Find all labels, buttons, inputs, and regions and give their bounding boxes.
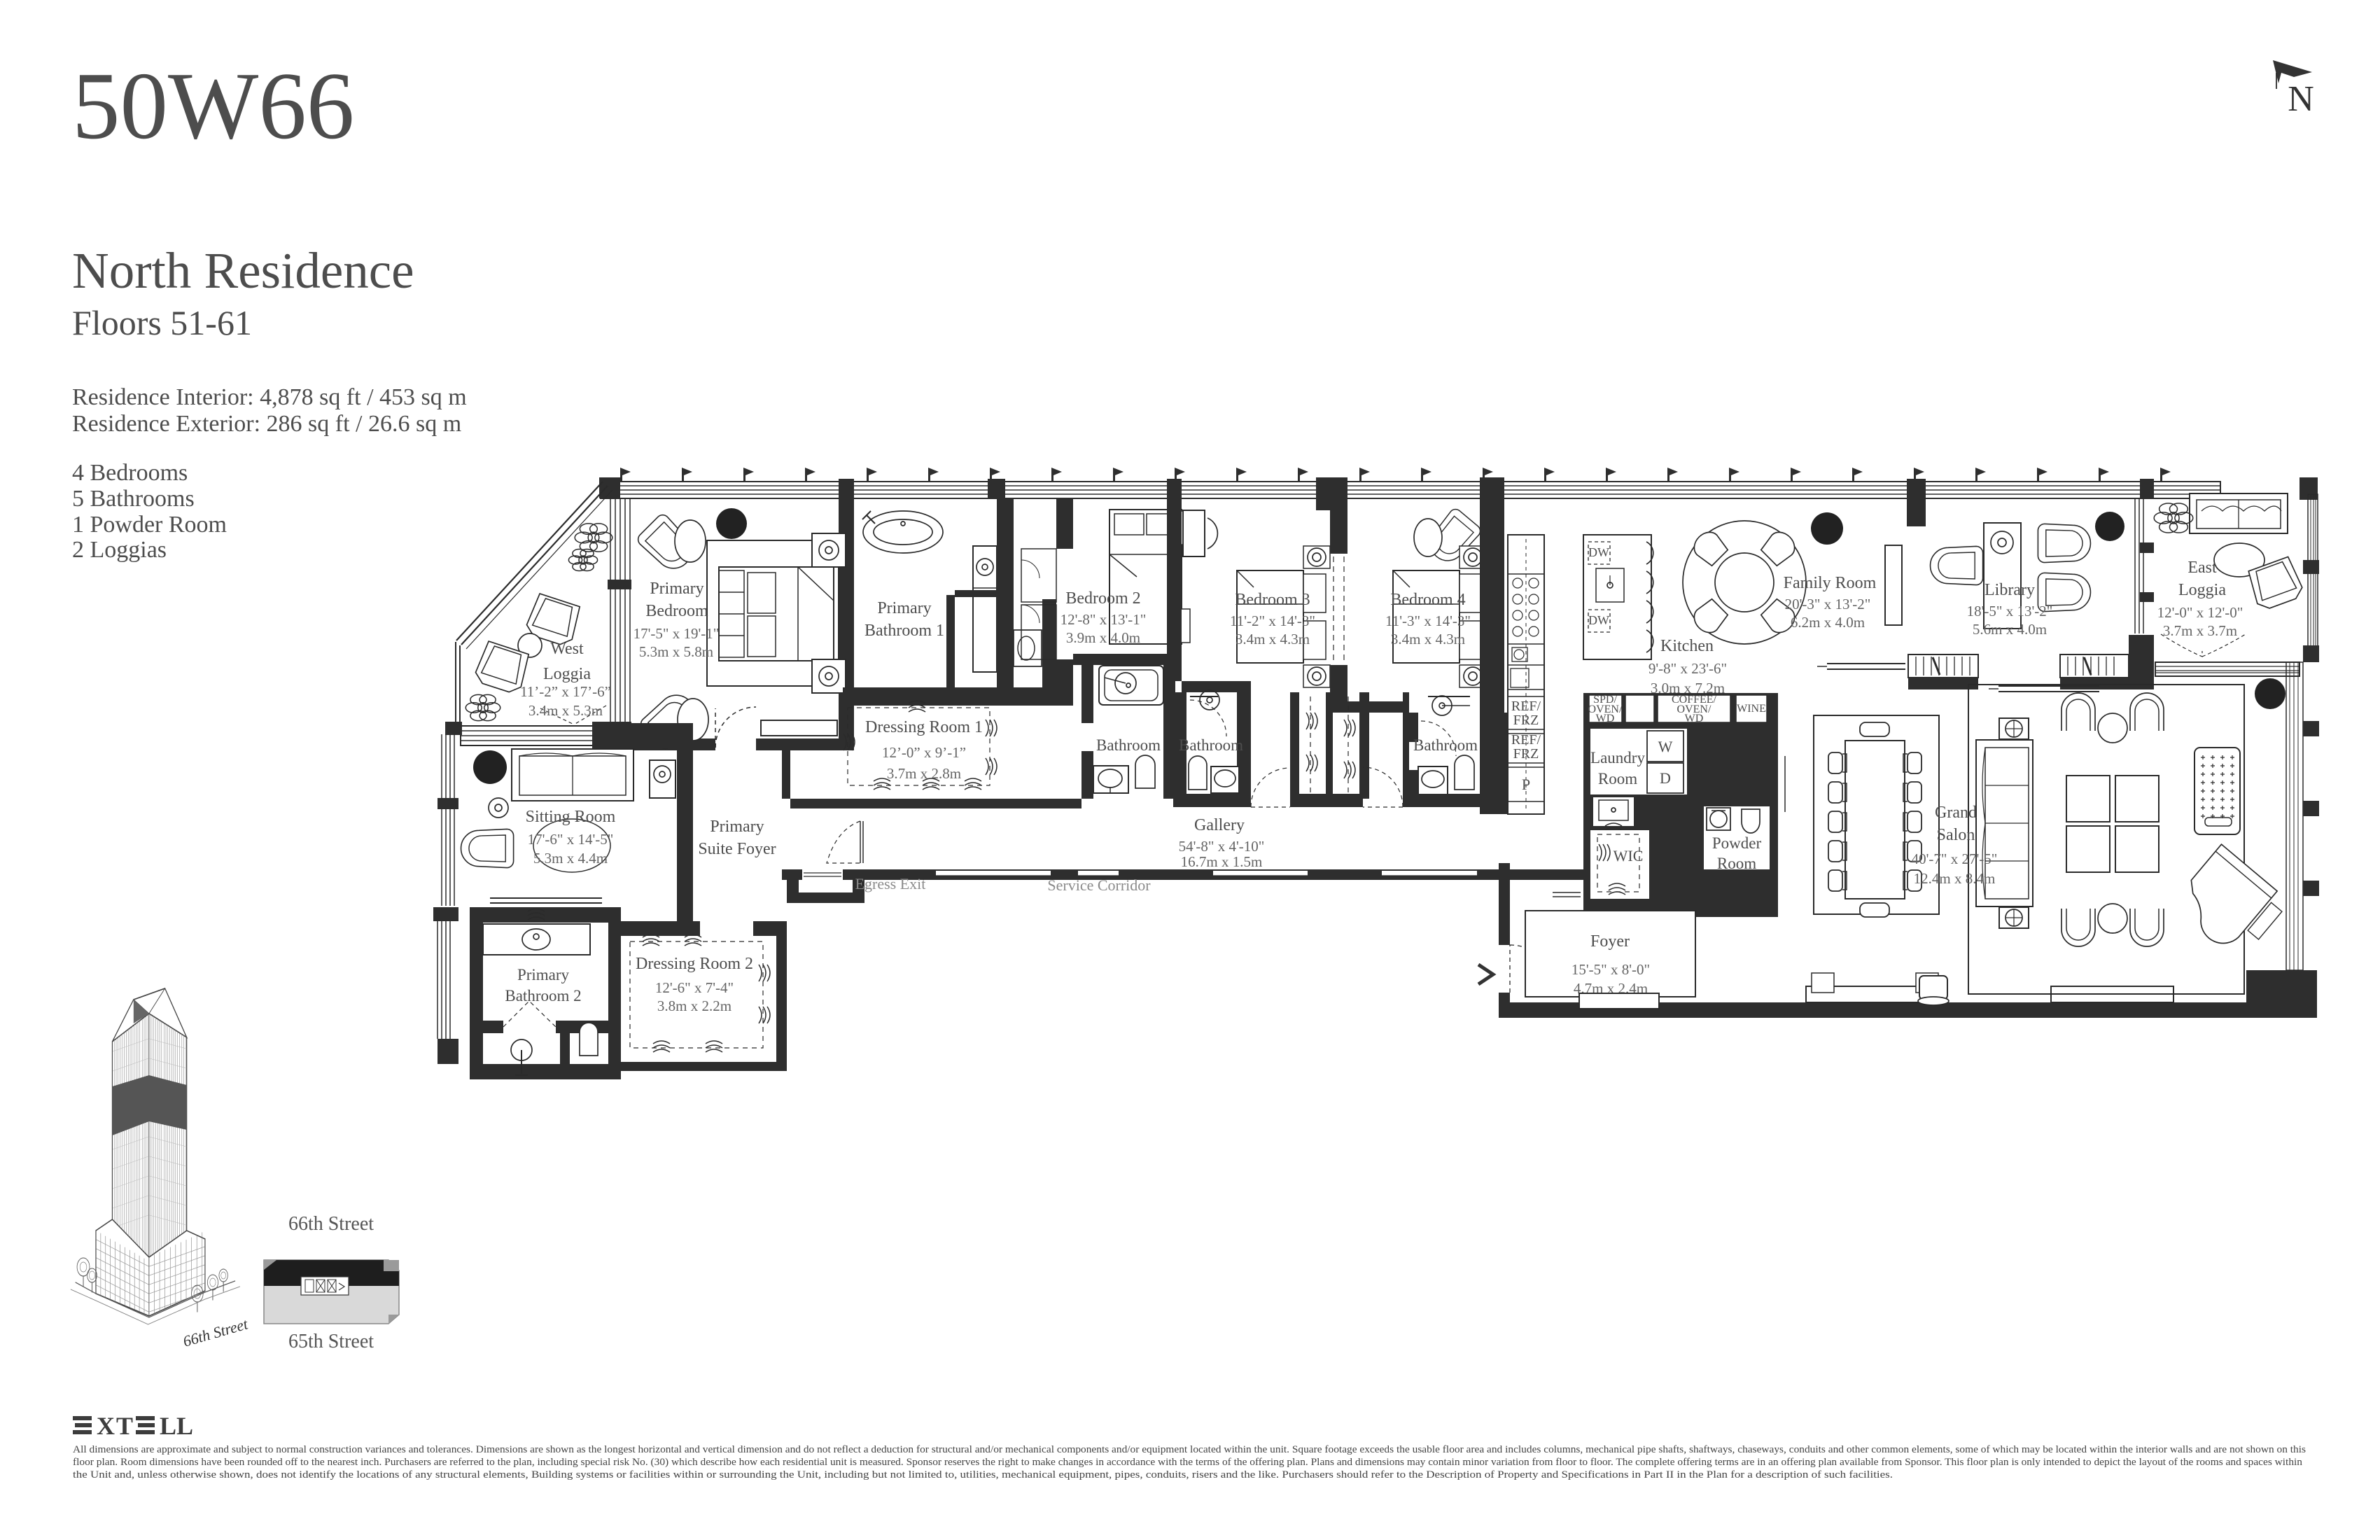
svg-text:Room: Room xyxy=(1598,770,1637,787)
svg-text:P: P xyxy=(1522,776,1530,793)
svg-text:WINE: WINE xyxy=(1737,703,1766,715)
svg-text:3.4m x 5.3m: 3.4m x 5.3m xyxy=(528,702,603,719)
svg-text:the Unit and, unless otherwis: the Unit and, unless otherwise shown, do… xyxy=(73,1469,1893,1480)
svg-text:Bedroom 4: Bedroom 4 xyxy=(1390,591,1465,609)
svg-text:Laundry: Laundry xyxy=(1590,749,1645,766)
svg-text:Egress Exit: Egress Exit xyxy=(855,875,926,892)
svg-text:17'-6" x 14'-5": 17'-6" x 14'-5" xyxy=(528,831,614,848)
svg-text:12’-0” x 9’-1”: 12’-0” x 9’-1” xyxy=(882,744,966,761)
svg-text:12'-0" x 12'-0": 12'-0" x 12'-0" xyxy=(2157,604,2243,621)
svg-text:16.7m x 1.5m: 16.7m x 1.5m xyxy=(1181,853,1263,870)
svg-text:Residence Exterior: 286 sq ft: Residence Exterior: 286 sq ft / 26.6 sq … xyxy=(72,411,461,437)
svg-text:Dressing Room 2: Dressing Room 2 xyxy=(636,955,753,973)
svg-text:3.8m x 2.2m: 3.8m x 2.2m xyxy=(657,997,731,1014)
svg-text:1 Powder Room: 1 Powder Room xyxy=(72,512,227,538)
svg-text:11'-2" x 14'-3": 11'-2" x 14'-3" xyxy=(1230,612,1315,629)
svg-text:40'-7" x 27'-5": 40'-7" x 27'-5" xyxy=(1912,850,1998,867)
svg-text:Primary: Primary xyxy=(650,580,703,598)
svg-text:T: T xyxy=(116,1412,133,1440)
svg-text:50W66: 50W66 xyxy=(72,52,354,159)
svg-text:Family Room: Family Room xyxy=(1784,574,1877,592)
svg-text:Loggia: Loggia xyxy=(543,665,591,683)
svg-text:54'-8" x 4'-10": 54'-8" x 4'-10" xyxy=(1179,838,1265,855)
svg-text:5.3m x 4.4m: 5.3m x 4.4m xyxy=(533,850,608,867)
svg-text:Bathroom: Bathroom xyxy=(1179,736,1243,754)
svg-text:Bedroom 3: Bedroom 3 xyxy=(1235,591,1310,609)
svg-text:WD: WD xyxy=(1596,713,1615,724)
svg-text:Grand: Grand xyxy=(1935,804,1977,822)
svg-text:Service Corridor: Service Corridor xyxy=(1047,876,1151,894)
svg-text:N: N xyxy=(2288,79,2314,119)
svg-text:L: L xyxy=(176,1412,193,1440)
svg-text:12'-8" x 13'-1": 12'-8" x 13'-1" xyxy=(1060,611,1147,628)
svg-text:Library: Library xyxy=(1984,581,2035,599)
svg-text:12.4m x 8.4m: 12.4m x 8.4m xyxy=(1914,870,1996,887)
svg-text:Foyer: Foyer xyxy=(1590,932,1630,951)
svg-text:Dressing Room 1: Dressing Room 1 xyxy=(865,718,983,736)
svg-text:11’-2” x 17’-6”: 11’-2” x 17’-6” xyxy=(520,683,611,700)
svg-text:Bathroom 2: Bathroom 2 xyxy=(505,987,581,1004)
svg-text:Gallery: Gallery xyxy=(1194,816,1245,834)
svg-text:WD: WD xyxy=(1685,713,1704,724)
svg-text:Salon: Salon xyxy=(1937,826,1975,844)
svg-text:Kitchen: Kitchen xyxy=(1660,637,1714,655)
svg-text:3.4m x 4.3m: 3.4m x 4.3m xyxy=(1391,631,1465,647)
svg-text:Primary: Primary xyxy=(710,818,764,836)
svg-text:3.9m x 4.0m: 3.9m x 4.0m xyxy=(1066,629,1140,646)
svg-text:WIC: WIC xyxy=(1613,847,1644,864)
svg-text:DW: DW xyxy=(1588,545,1609,559)
svg-text:66th Street: 66th Street xyxy=(181,1315,250,1350)
svg-text:Primary: Primary xyxy=(877,599,931,617)
svg-text:East: East xyxy=(2187,559,2217,577)
svg-text:REF/: REF/ xyxy=(1511,699,1541,714)
svg-text:Bedroom 2: Bedroom 2 xyxy=(1065,589,1140,608)
svg-text:20'-3" x 13'-2": 20'-3" x 13'-2" xyxy=(1785,596,1871,612)
svg-text:6.2m x 4.0m: 6.2m x 4.0m xyxy=(1791,614,1865,631)
svg-text:5 Bathrooms: 5 Bathrooms xyxy=(72,486,195,512)
svg-text:FRZ: FRZ xyxy=(1513,746,1539,762)
svg-text:W: W xyxy=(1658,738,1673,755)
svg-text:REF/: REF/ xyxy=(1511,732,1541,748)
svg-text:9'-8" x 23'-6": 9'-8" x 23'-6" xyxy=(1648,660,1727,677)
svg-text:4 Bedrooms: 4 Bedrooms xyxy=(72,460,188,486)
svg-text:3.7m x 3.7m: 3.7m x 3.7m xyxy=(2163,622,2237,639)
svg-text:18'-5" x 13'-2": 18'-5" x 13'-2" xyxy=(1967,603,2053,619)
svg-text:Residence Interior: 4,878 sq f: Residence Interior: 4,878 sq ft / 453 sq… xyxy=(72,384,467,410)
svg-text:L: L xyxy=(160,1412,176,1440)
svg-text:All dimensions are approximate: All dimensions are approximate and subje… xyxy=(73,1444,2306,1455)
svg-text:15'-5" x 8'-0": 15'-5" x 8'-0" xyxy=(1571,961,1650,978)
svg-text:5.6m x 4.0m: 5.6m x 4.0m xyxy=(1973,621,2047,638)
svg-text:Bathroom 1: Bathroom 1 xyxy=(864,622,944,640)
svg-text:2 Loggias: 2 Loggias xyxy=(72,537,167,563)
svg-text:Bedroom: Bedroom xyxy=(645,602,708,620)
svg-text:Room: Room xyxy=(1717,855,1756,872)
svg-text:North Residence: North Residence xyxy=(72,242,414,299)
svg-text:FRZ: FRZ xyxy=(1513,713,1539,728)
svg-text:Loggia: Loggia xyxy=(2178,581,2226,599)
svg-text:Suite Foyer: Suite Foyer xyxy=(698,840,776,858)
svg-text:X: X xyxy=(97,1412,115,1440)
svg-text:65th Street: 65th Street xyxy=(288,1331,374,1352)
svg-text:5.3m x 5.8m: 5.3m x 5.8m xyxy=(639,643,713,660)
svg-text:3.7m x 2.8m: 3.7m x 2.8m xyxy=(887,765,961,782)
svg-text:17'-5" x 19'-1": 17'-5" x 19'-1" xyxy=(633,625,720,642)
svg-text:Bathroom: Bathroom xyxy=(1413,736,1478,754)
svg-text:12'-6" x 7'-4": 12'-6" x 7'-4" xyxy=(655,979,734,996)
svg-text:Sitting Room: Sitting Room xyxy=(526,808,616,826)
svg-text:11'-3" x 14'-3": 11'-3" x 14'-3" xyxy=(1385,612,1471,629)
svg-text:66th Street: 66th Street xyxy=(288,1213,374,1235)
svg-text:DW: DW xyxy=(1588,613,1609,627)
svg-text:Powder: Powder xyxy=(1712,834,1762,852)
svg-text:Bathroom: Bathroom xyxy=(1096,736,1161,754)
svg-text:3.4m x 4.3m: 3.4m x 4.3m xyxy=(1235,631,1310,647)
svg-text:floor plan. Room dimensions: floor plan. Room dimensions have been ro… xyxy=(73,1457,2303,1468)
svg-text:Primary: Primary xyxy=(517,966,570,983)
svg-text:West: West xyxy=(550,640,584,658)
svg-text:D: D xyxy=(1660,769,1671,787)
svg-text:Floors 51-61: Floors 51-61 xyxy=(72,303,252,342)
